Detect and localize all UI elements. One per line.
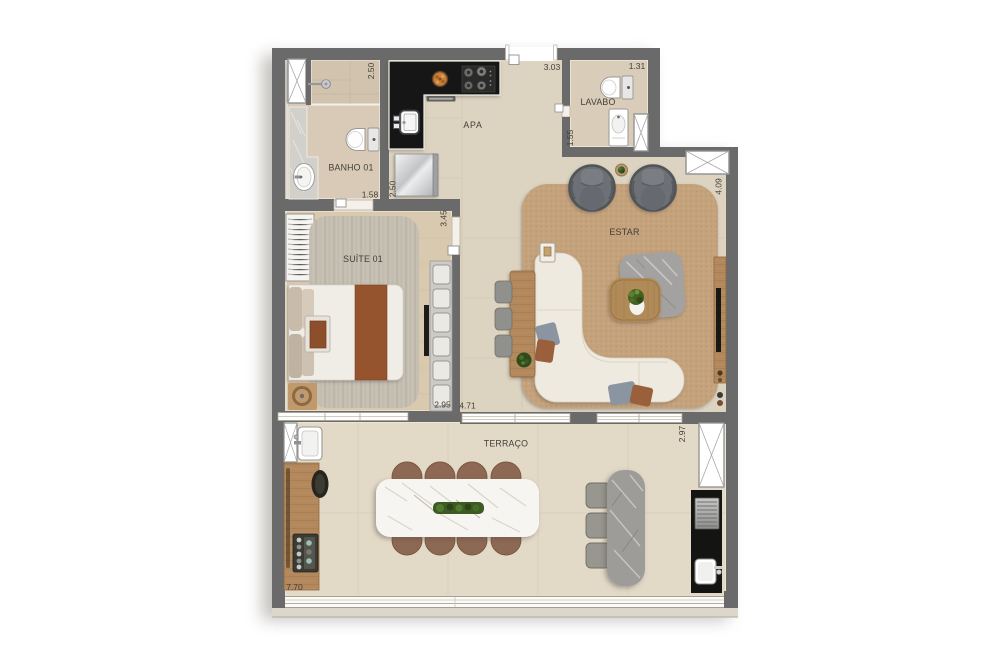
svg-text:3.03: 3.03 <box>544 62 561 72</box>
svg-text:7.70: 7.70 <box>286 582 303 592</box>
svg-text:BANHO 01: BANHO 01 <box>328 163 373 173</box>
svg-text:2.97: 2.97 <box>677 425 687 442</box>
svg-text:ESTAR: ESTAR <box>609 227 640 237</box>
svg-text:1.31: 1.31 <box>629 61 646 71</box>
svg-text:LAVABO: LAVABO <box>580 97 615 107</box>
svg-text:TERRAÇO: TERRAÇO <box>484 439 528 449</box>
svg-text:2.50: 2.50 <box>388 180 398 197</box>
svg-text:2.50: 2.50 <box>366 62 376 79</box>
svg-text:1.58: 1.58 <box>362 190 379 200</box>
svg-text:1.55: 1.55 <box>565 129 575 146</box>
svg-text:SUÍTE 01: SUÍTE 01 <box>343 254 383 264</box>
svg-text:4.09: 4.09 <box>714 178 724 195</box>
svg-text:3.45: 3.45 <box>439 210 449 227</box>
svg-text:APA: APA <box>463 120 482 130</box>
svg-text:2.95: 2.95 <box>434 400 451 410</box>
svg-text:4.71: 4.71 <box>459 401 476 411</box>
